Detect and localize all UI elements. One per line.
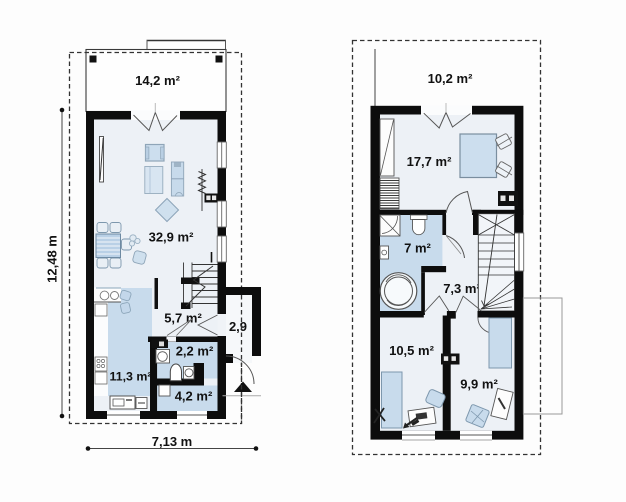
svg-text:11,3 m²: 11,3 m² <box>109 370 151 384</box>
svg-text:32,9 m²: 32,9 m² <box>149 230 194 245</box>
svg-text:9,9 m²: 9,9 m² <box>460 377 498 392</box>
svg-text:7,3 m²: 7,3 m² <box>443 281 481 296</box>
svg-text:10,2 m²: 10,2 m² <box>428 71 473 86</box>
svg-text:17,7 m²: 17,7 m² <box>407 154 452 169</box>
svg-text:7,13 m: 7,13 m <box>152 434 192 449</box>
svg-text:12,48 m: 12,48 m <box>45 235 60 283</box>
svg-text:2,2 m²: 2,2 m² <box>176 344 214 359</box>
svg-text:10,5 m²: 10,5 m² <box>389 343 434 358</box>
svg-text:7 m²: 7 m² <box>404 241 431 256</box>
svg-text:14,2 m²: 14,2 m² <box>135 73 180 88</box>
svg-text:2,9: 2,9 <box>229 319 247 334</box>
svg-text:4,2 m²: 4,2 m² <box>175 389 213 404</box>
svg-text:5,7 m²: 5,7 m² <box>164 311 202 326</box>
